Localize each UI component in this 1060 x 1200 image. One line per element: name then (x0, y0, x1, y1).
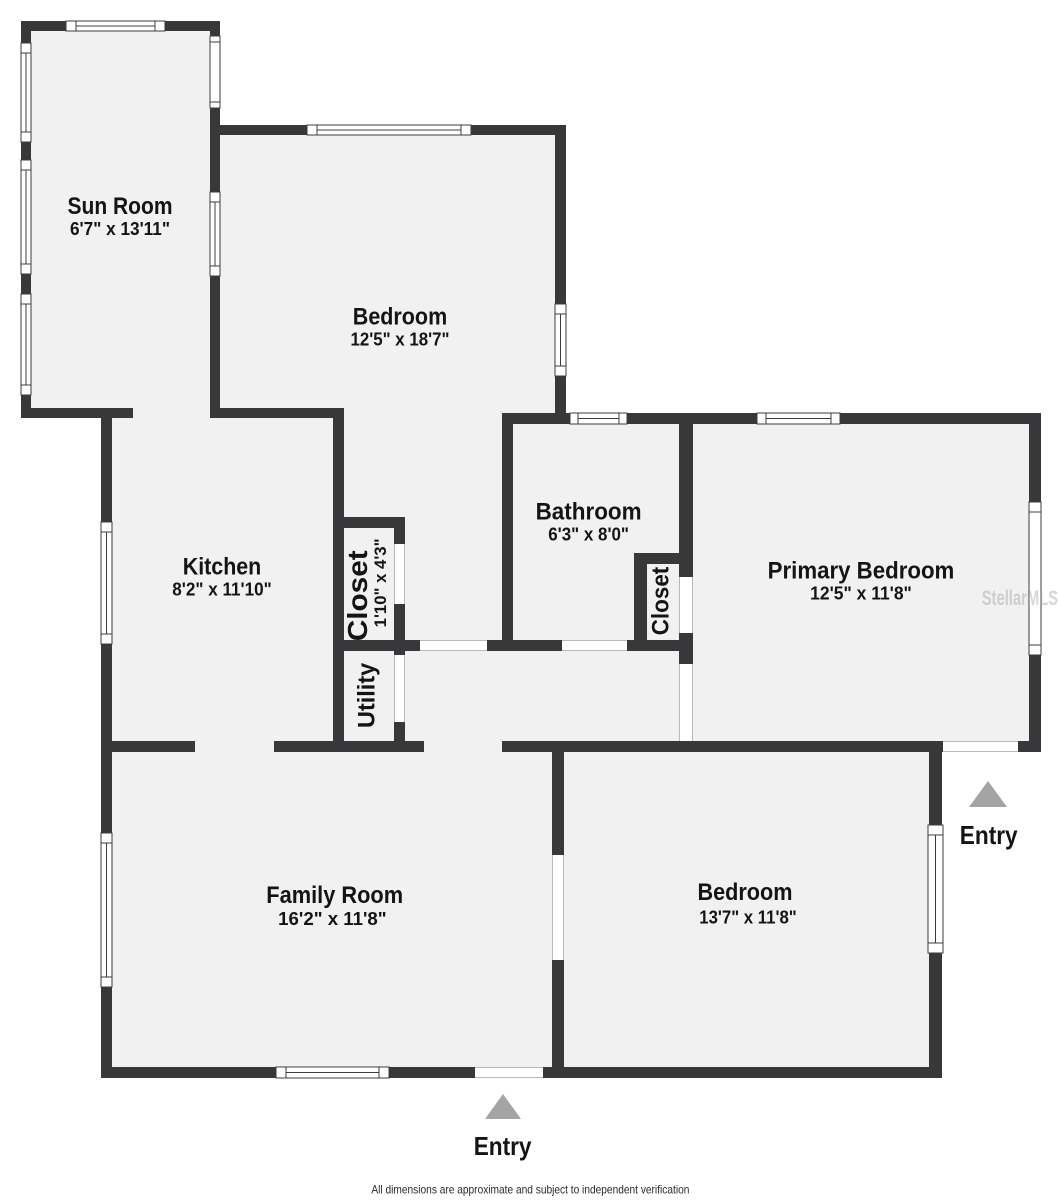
svg-text:All dimensions are approximate: All dimensions are approximate and subje… (371, 1183, 689, 1197)
svg-text:1'10" x 4'3": 1'10" x 4'3" (371, 538, 390, 627)
svg-text:Bathroom: Bathroom (536, 499, 642, 526)
svg-text:8'2" x 11'10": 8'2" x 11'10" (172, 580, 272, 600)
svg-text:13'7" x 11'8": 13'7" x 11'8" (699, 908, 797, 928)
svg-text:Closet: Closet (648, 567, 675, 636)
svg-text:Closet: Closet (342, 550, 373, 641)
svg-text:Bedroom: Bedroom (698, 879, 793, 906)
svg-text:Primary Bedroom: Primary Bedroom (768, 558, 955, 585)
svg-text:Bedroom: Bedroom (353, 304, 447, 331)
svg-text:12'5" x 11'8": 12'5" x 11'8" (810, 584, 912, 604)
svg-text:Entry: Entry (960, 820, 1018, 850)
svg-text:12'5" x 18'7": 12'5" x 18'7" (351, 330, 450, 350)
svg-text:Sun Room: Sun Room (68, 193, 173, 220)
svg-text:16'2" x 11'8": 16'2" x 11'8" (278, 909, 387, 929)
svg-text:Utility: Utility (354, 662, 381, 728)
svg-text:6'7" x 13'11": 6'7" x 13'11" (70, 219, 170, 239)
svg-text:StellarMLS: StellarMLS (982, 587, 1058, 610)
svg-text:6'3" x 8'0": 6'3" x 8'0" (548, 525, 629, 545)
svg-text:Kitchen: Kitchen (183, 554, 262, 581)
svg-text:Entry: Entry (474, 1131, 532, 1161)
svg-text:Family Room: Family Room (266, 882, 403, 909)
